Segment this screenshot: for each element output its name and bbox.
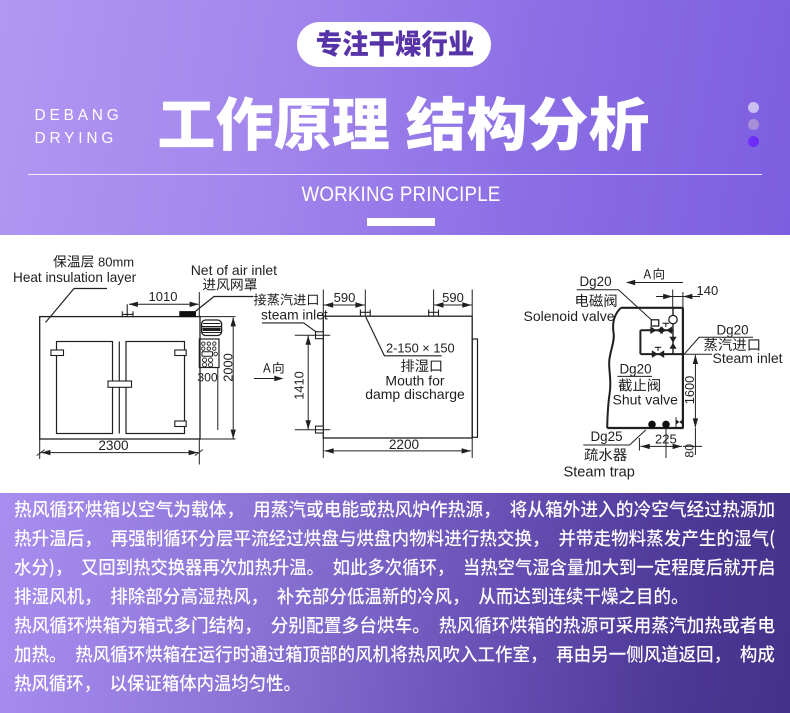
svg-text:Dg25: Dg25 bbox=[591, 429, 623, 444]
svg-text:Steam trap: Steam trap bbox=[564, 465, 635, 481]
svg-text:Dg20: Dg20 bbox=[580, 274, 612, 289]
svg-text:steam inlet: steam inlet bbox=[261, 308, 328, 323]
svg-text:Solenoid valve: Solenoid valve bbox=[524, 308, 615, 324]
svg-text:Net of air inlet: Net of air inlet bbox=[191, 262, 277, 278]
svg-text:Heat insulation layer: Heat insulation layer bbox=[13, 270, 137, 285]
svg-text:80: 80 bbox=[682, 444, 696, 458]
svg-text:2300: 2300 bbox=[98, 438, 129, 453]
svg-text:590: 590 bbox=[442, 290, 464, 305]
svg-text:80mm: 80mm bbox=[98, 255, 134, 270]
svg-text:Shut valve: Shut valve bbox=[613, 392, 679, 408]
svg-text:1410: 1410 bbox=[291, 371, 306, 399]
svg-text:1600: 1600 bbox=[682, 376, 697, 404]
svg-text:Steam inlet: Steam inlet bbox=[713, 350, 783, 366]
svg-text:damp discharge: damp discharge bbox=[365, 386, 465, 402]
svg-text:2200: 2200 bbox=[389, 437, 420, 452]
svg-text:2-150 × 150: 2-150 × 150 bbox=[386, 341, 455, 356]
svg-text:225: 225 bbox=[655, 432, 677, 447]
svg-text:Dg20: Dg20 bbox=[620, 362, 652, 377]
svg-text:590: 590 bbox=[334, 290, 356, 305]
svg-text:Dg20: Dg20 bbox=[717, 323, 749, 338]
svg-text:1010: 1010 bbox=[149, 289, 178, 304]
svg-text:300: 300 bbox=[197, 371, 218, 385]
svg-text:140: 140 bbox=[697, 283, 719, 298]
